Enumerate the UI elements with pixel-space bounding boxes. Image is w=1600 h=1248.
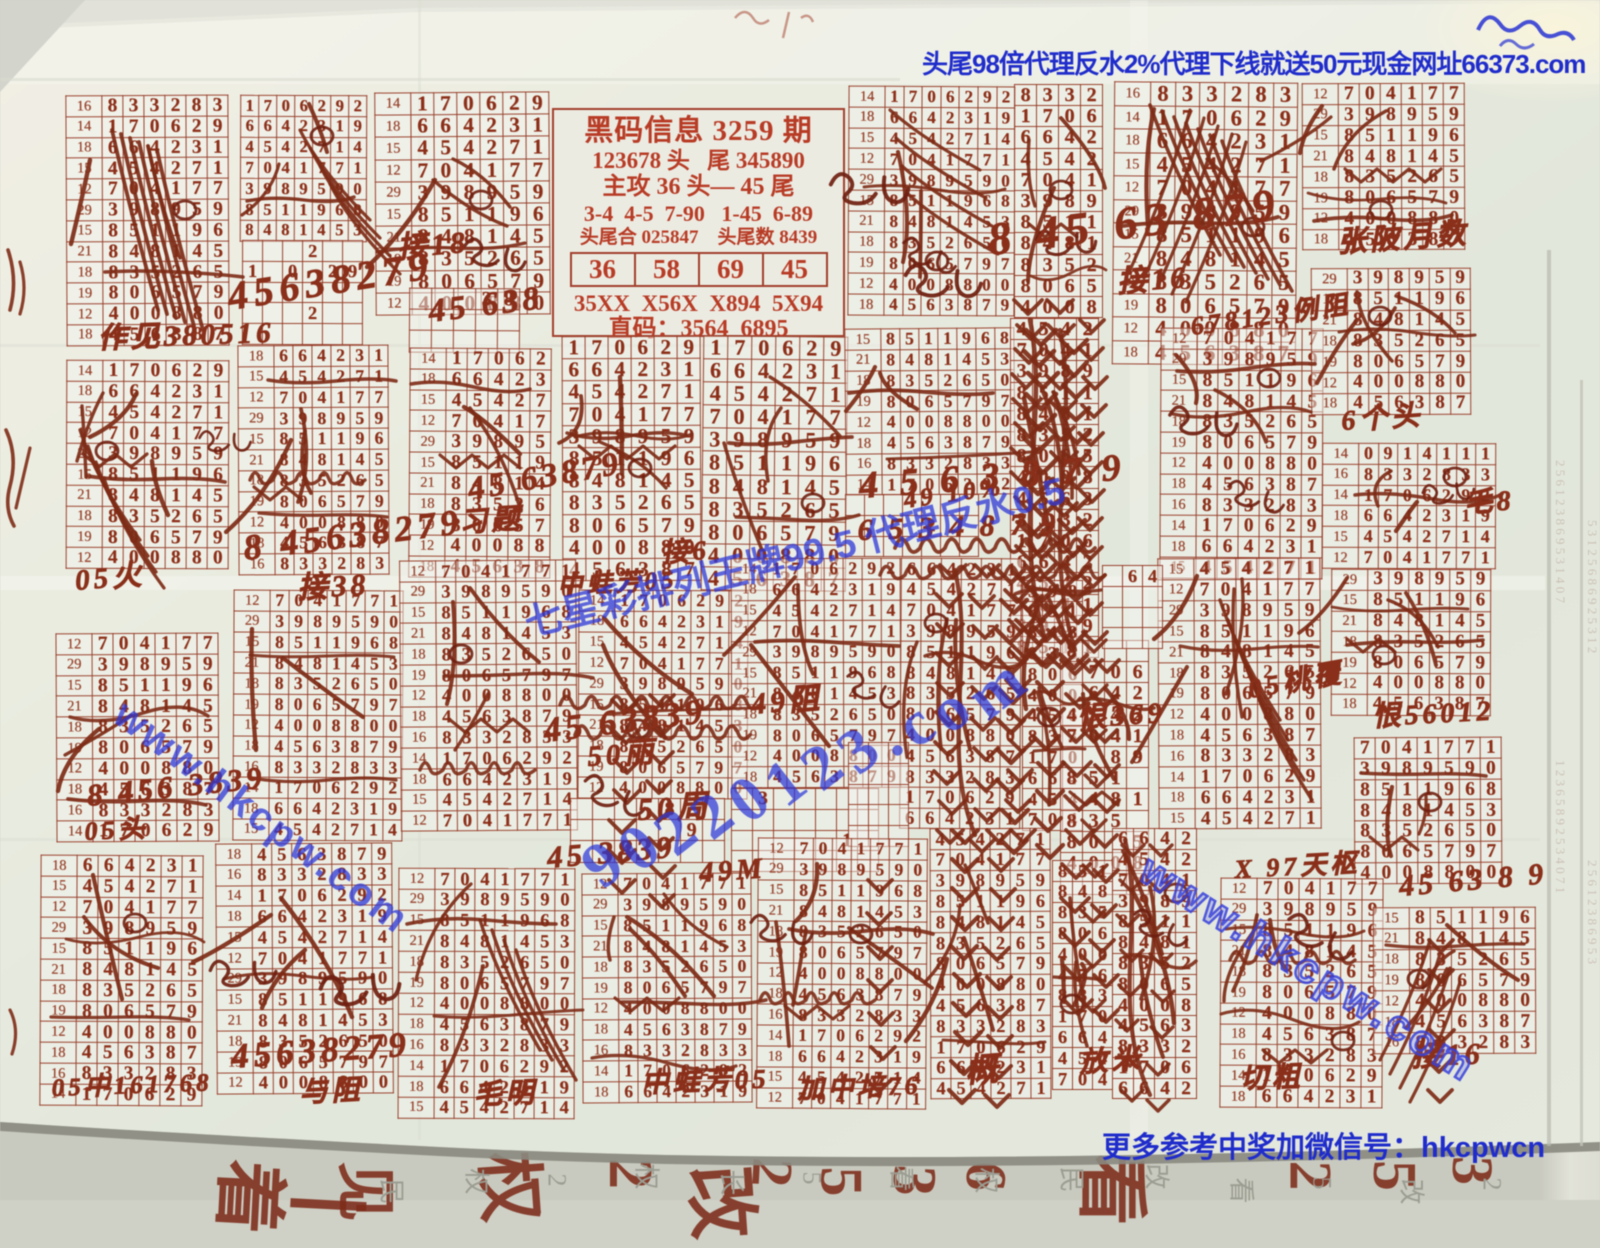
svg-text:45 63879: 45 63879 xyxy=(464,445,625,508)
svg-text:切粗: 切粗 xyxy=(1239,1062,1304,1095)
svg-text:49阻: 49阻 xyxy=(749,682,825,721)
svg-text:毛明: 毛明 xyxy=(473,1078,539,1111)
svg-text:X 97天枢: X 97天枢 xyxy=(1233,848,1362,884)
svg-text:6个头: 6个头 xyxy=(1340,399,1424,437)
svg-text:接16: 接16 xyxy=(1116,261,1190,299)
svg-text:50丽: 50丽 xyxy=(586,736,659,773)
svg-text:05中161768: 05中161768 xyxy=(51,1068,213,1102)
svg-text:05桃覆: 05桃覆 xyxy=(1246,657,1348,704)
svg-text:49M: 49M xyxy=(697,852,767,889)
svg-text:678123例阻: 678123例阻 xyxy=(1189,290,1353,341)
svg-text:05头: 05头 xyxy=(84,814,149,846)
svg-text:加中培76: 加中培76 xyxy=(796,1071,922,1104)
svg-text:作见380516: 作见380516 xyxy=(97,317,275,355)
svg-text:中蛙芳05: 中蛙芳05 xyxy=(641,1064,770,1098)
svg-text:习题: 习题 xyxy=(458,504,525,539)
svg-text:接18: 接18 xyxy=(396,226,471,265)
svg-text:放米: 放米 xyxy=(1077,1043,1144,1079)
svg-text:45 63 8 9: 45 63 8 9 xyxy=(1397,857,1549,903)
svg-text:45 638: 45 638 xyxy=(426,280,545,330)
svg-text:概: 概 xyxy=(964,1050,1005,1090)
svg-text:毛8: 毛8 xyxy=(1464,485,1516,519)
svg-text:恨56012: 恨56012 xyxy=(1372,696,1495,733)
svg-text:接38: 接38 xyxy=(297,568,371,605)
svg-text:恨369: 恨369 xyxy=(1076,697,1167,735)
svg-text:8 45638279: 8 45638279 xyxy=(241,501,465,568)
svg-text:05火: 05火 xyxy=(74,559,147,597)
svg-text:45638279: 45638279 xyxy=(229,1025,412,1077)
svg-text:张陂月数: 张陂月数 xyxy=(1336,218,1470,259)
svg-text:与阻: 与阻 xyxy=(299,1075,365,1109)
